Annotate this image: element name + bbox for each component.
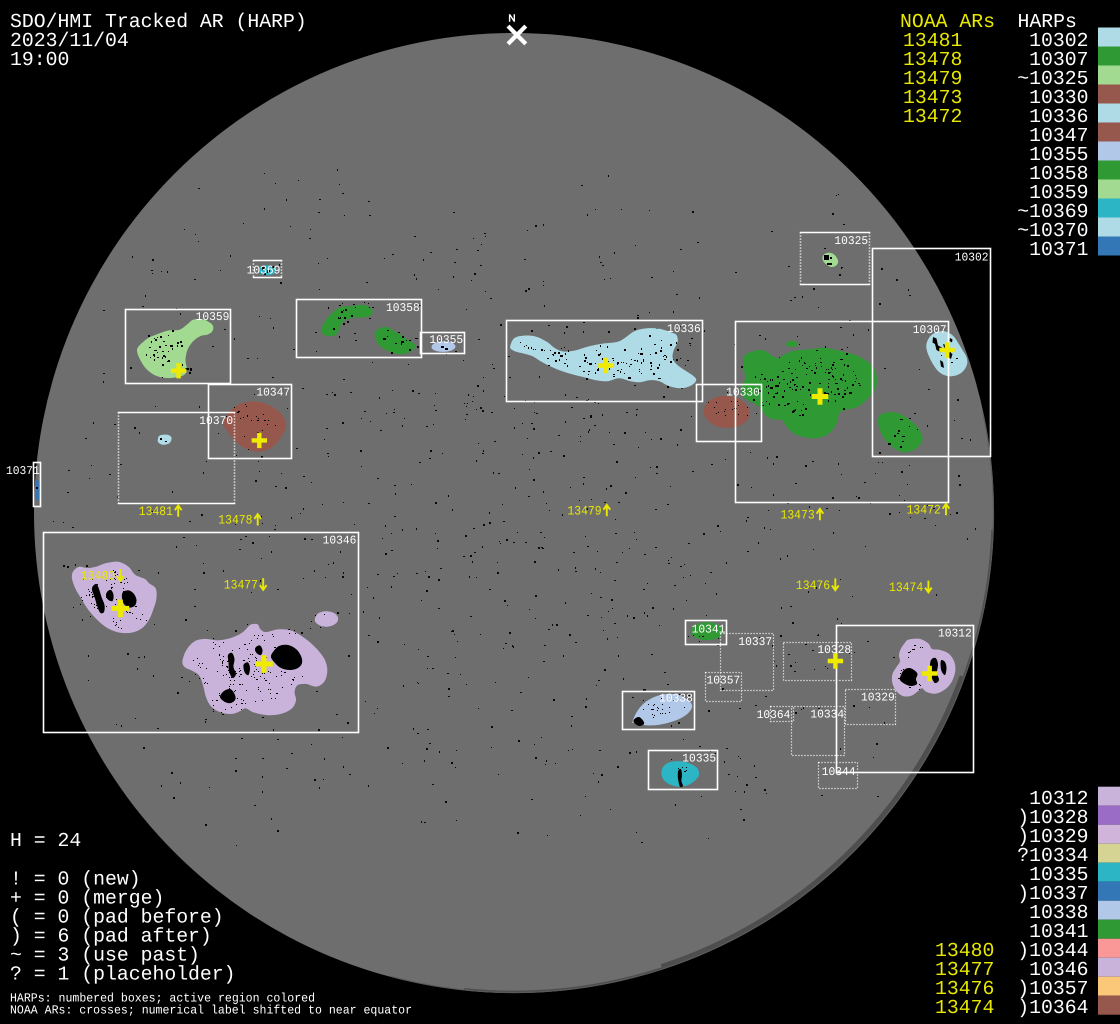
svg-text:10341: 10341	[692, 622, 726, 636]
svg-text:10347: 10347	[256, 386, 290, 400]
svg-text:10330: 10330	[726, 385, 760, 399]
svg-text:10337: 10337	[738, 635, 772, 649]
svg-text:13480: 13480	[81, 569, 115, 584]
svg-text:10344: 10344	[822, 765, 856, 779]
svg-text:13474: 13474	[889, 580, 923, 595]
svg-text:10355: 10355	[429, 333, 463, 347]
svg-text:10369: 10369	[247, 264, 281, 278]
svg-text:10359: 10359	[196, 310, 230, 324]
svg-text:10370: 10370	[199, 414, 233, 428]
svg-text:13481: 13481	[139, 504, 173, 519]
svg-text:13478: 13478	[218, 513, 252, 528]
svg-text:10302: 10302	[955, 250, 989, 264]
svg-text:10325: 10325	[834, 234, 868, 248]
svg-text:10329: 10329	[861, 691, 895, 705]
svg-text:10338: 10338	[659, 691, 693, 705]
svg-text:? = 1 (placeholder): ? = 1 (placeholder)	[10, 964, 236, 986]
svg-text:10334: 10334	[810, 707, 844, 721]
svg-text:10358: 10358	[386, 301, 420, 315]
svg-text:)10364: )10364	[1017, 997, 1088, 1019]
svg-text:13472: 13472	[907, 503, 941, 518]
svg-text:10357: 10357	[707, 674, 741, 688]
svg-text:10371: 10371	[1029, 239, 1088, 261]
svg-text:13473: 13473	[781, 508, 815, 523]
svg-text:NOAA ARs: crosses; numerical l: NOAA ARs: crosses; numerical label shift…	[10, 1004, 412, 1018]
svg-text:10307: 10307	[913, 323, 947, 337]
svg-text:13476: 13476	[796, 578, 830, 593]
svg-text:13479: 13479	[567, 504, 601, 519]
svg-text:10335: 10335	[682, 751, 716, 765]
svg-text:10371: 10371	[6, 464, 40, 478]
svg-text:10346: 10346	[323, 534, 357, 548]
svg-text:H = 24: H = 24	[10, 830, 81, 852]
svg-text:19:00: 19:00	[10, 49, 69, 71]
svg-text:13472: 13472	[903, 106, 962, 128]
svg-text:10312: 10312	[938, 626, 972, 640]
svg-text:13474: 13474	[935, 997, 994, 1019]
svg-text:13477: 13477	[224, 578, 258, 593]
svg-text:10336: 10336	[667, 322, 701, 336]
svg-text:10364: 10364	[757, 708, 791, 722]
